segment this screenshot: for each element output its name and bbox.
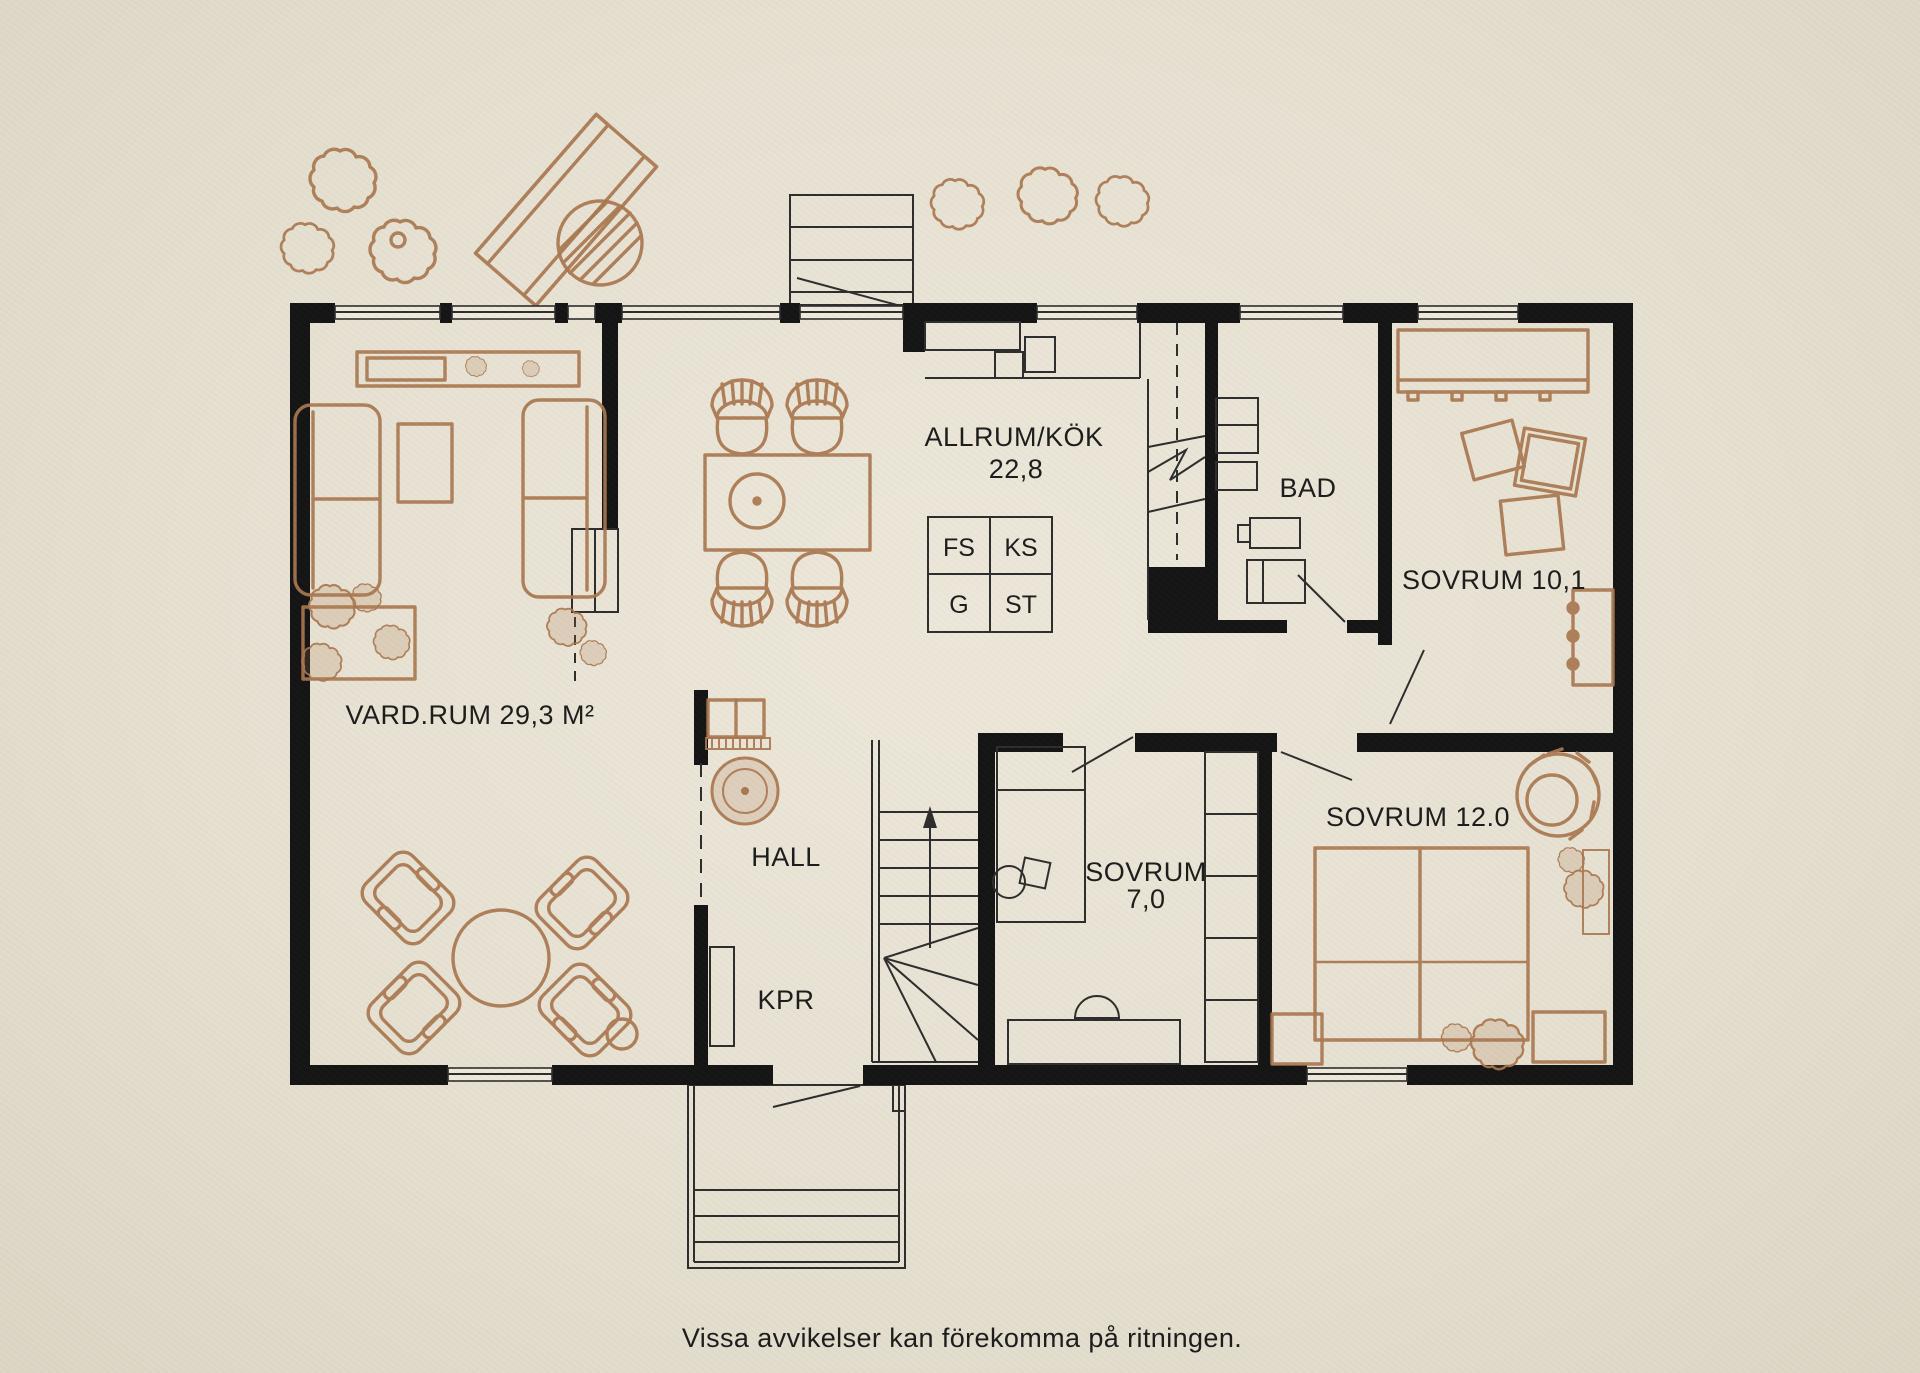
- wardrobe: [1205, 752, 1258, 814]
- door-sovrum-7: [1072, 737, 1133, 772]
- bed: [997, 747, 1085, 922]
- label-sovrum-7-area: 7,0: [1126, 884, 1165, 914]
- washer: [1247, 560, 1305, 603]
- door-sovrum-12: [1281, 752, 1352, 780]
- label-kpr: KPR: [757, 985, 814, 1015]
- room-labels: VARD.RUM 29,3 M² ALLRUM/KÖK 22,8 BAD SOV…: [345, 422, 1586, 1015]
- garden-bushes: [281, 149, 1149, 282]
- round-dining-group: [356, 846, 637, 1061]
- stove: [1025, 337, 1055, 372]
- dresser: [1398, 330, 1588, 400]
- door-entrance: [773, 1086, 860, 1107]
- appliance-g: G: [949, 591, 968, 619]
- kitchen-counter: [925, 322, 1140, 378]
- wardrobe: [1205, 814, 1258, 876]
- stool: [607, 1019, 637, 1049]
- dining-nook-furniture: [705, 380, 870, 626]
- sovrum-12-furniture: [1272, 749, 1609, 1069]
- round-rug: [712, 758, 778, 824]
- sofa-right: [523, 400, 605, 597]
- appliance-ks: KS: [1004, 534, 1037, 562]
- label-hall: HALL: [751, 842, 821, 872]
- tv: [367, 358, 445, 380]
- sovrum-10-furniture: [1398, 330, 1613, 685]
- wardrobe: [1205, 938, 1258, 1000]
- door-swings: [773, 278, 1424, 1107]
- hall-staircase: [872, 740, 978, 1062]
- appliance-box: FS KS G ST: [928, 517, 1052, 632]
- garden-bench: [475, 114, 656, 305]
- kpr-closet: [710, 947, 734, 1046]
- floor-plan-page: FS KS G ST: [0, 0, 1920, 1373]
- bed: [1568, 590, 1613, 685]
- door-sovrum-10: [1390, 650, 1424, 724]
- label-sovrum-12: SOVRUM 12.0: [1326, 802, 1510, 832]
- appliance-fs: FS: [943, 534, 975, 562]
- floor-cushions: [1462, 420, 1586, 555]
- label-allrum-kok: ALLRUM/KÖK: [924, 422, 1103, 452]
- appliance-st: ST: [1005, 591, 1037, 619]
- toilet: [1250, 518, 1300, 548]
- wardrobe: [1205, 876, 1258, 938]
- double-bed: [1315, 848, 1528, 1040]
- label-allrum-kok-area: 22,8: [989, 454, 1044, 484]
- label-sovrum-7: SOVRUM: [1085, 857, 1207, 887]
- wardrobe: [1205, 1000, 1258, 1062]
- interior-walls: [602, 322, 1620, 1085]
- doormat: [706, 738, 770, 749]
- vanity: [1216, 398, 1258, 425]
- label-vardagsrum: VARD.RUM 29,3 M²: [345, 700, 594, 730]
- floor-plan-drawing: FS KS G ST: [0, 0, 1920, 1373]
- coffee-table: [398, 424, 452, 502]
- chair: [1075, 996, 1119, 1018]
- entrance-porch: [688, 1085, 905, 1268]
- basket-chair: [1517, 749, 1599, 839]
- desk: [1008, 1020, 1180, 1064]
- deck-stairs: [790, 195, 913, 305]
- disclaimer-caption: Vissa avvikelser kan förekomma på ritnin…: [682, 1323, 1242, 1353]
- round-table: [453, 910, 549, 1006]
- hall-furniture: [706, 700, 778, 824]
- label-bad: BAD: [1279, 473, 1336, 503]
- label-sovrum-10: SOVRUM 10,1: [1402, 565, 1586, 595]
- outer-walls: [290, 303, 1633, 1085]
- nightstand: [1533, 1012, 1605, 1062]
